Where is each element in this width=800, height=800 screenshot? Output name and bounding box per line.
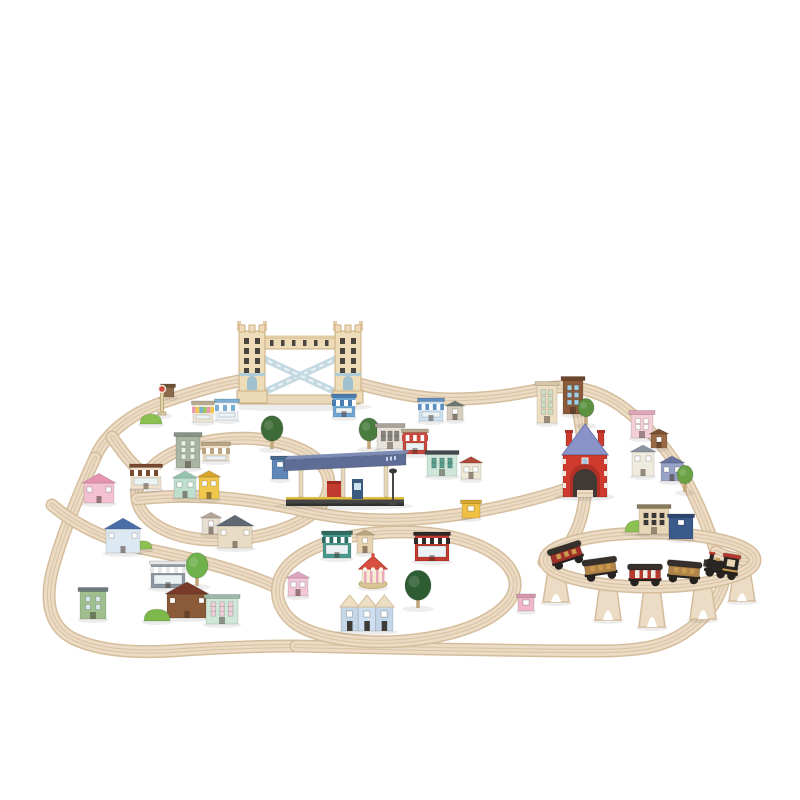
blue-arcade xyxy=(667,514,696,543)
red-tunnel-station xyxy=(555,424,615,501)
arcade-building xyxy=(636,505,672,539)
bandstand xyxy=(357,553,388,591)
small-pink-house xyxy=(286,572,310,600)
dark-roof-store xyxy=(424,451,460,481)
mint-market xyxy=(203,595,241,629)
blue-bank xyxy=(331,394,357,421)
blue-white-shop xyxy=(417,398,446,425)
blue-awning-shop xyxy=(214,399,240,424)
rainbow-awning-shop xyxy=(191,401,215,426)
bakery-shop xyxy=(128,464,164,493)
tree xyxy=(402,570,433,612)
white-house xyxy=(630,445,656,480)
small-tan-house xyxy=(355,530,375,557)
general-store xyxy=(174,433,203,473)
gray-roof-cottage xyxy=(215,515,256,552)
yellow-house xyxy=(197,471,221,503)
small-gray-house xyxy=(445,401,465,424)
teal-shop xyxy=(320,531,354,562)
wooden-train-set-scene xyxy=(0,0,800,800)
museum xyxy=(374,424,405,454)
wooden-track-bottom-oval xyxy=(277,532,515,642)
red-theatre xyxy=(412,532,453,565)
mint-house xyxy=(172,471,198,502)
cream-tower xyxy=(535,382,559,428)
yellow-hut xyxy=(460,500,482,522)
blue-roof-house xyxy=(103,518,144,557)
green-kiosk xyxy=(77,588,108,624)
tan-shop xyxy=(200,442,231,465)
red-roof-cottage xyxy=(459,457,483,483)
station-platform xyxy=(274,450,414,510)
track-riser xyxy=(636,587,668,631)
small-brown-house xyxy=(649,429,669,452)
terrace-houses xyxy=(336,595,398,635)
product-photo xyxy=(0,0,800,800)
pink-hut xyxy=(516,594,536,615)
